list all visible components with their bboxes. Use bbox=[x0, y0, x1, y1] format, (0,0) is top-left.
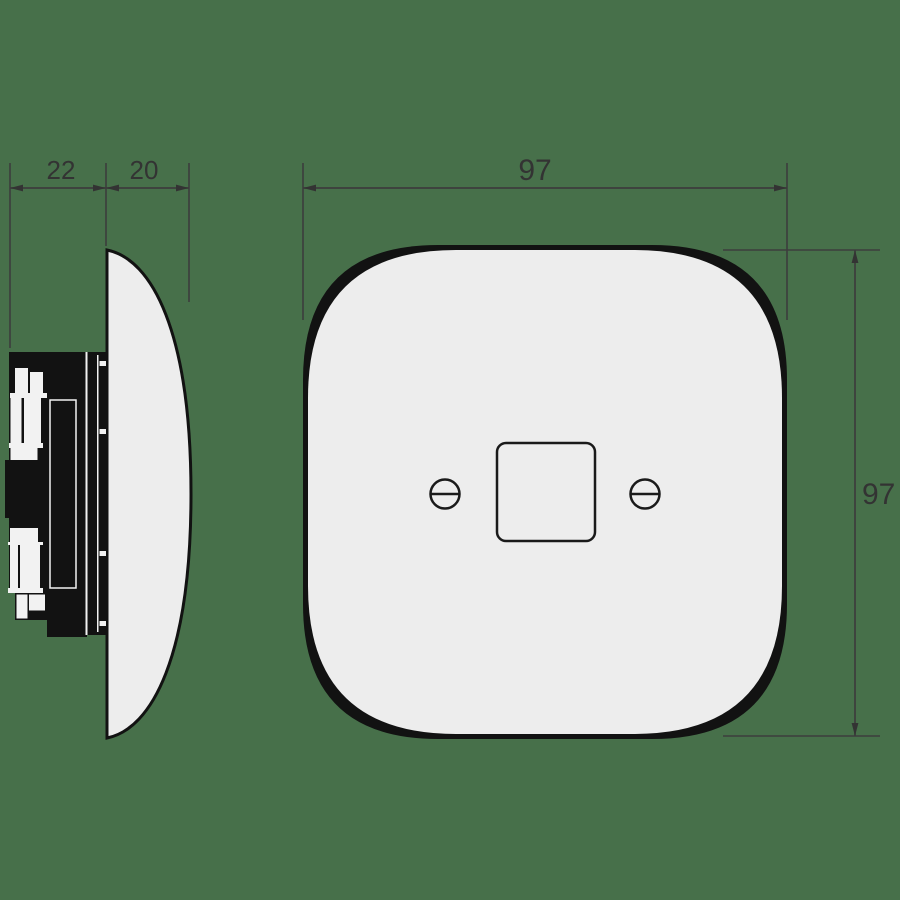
mechanism-slot bbox=[11, 448, 38, 460]
mechanism-body bbox=[47, 352, 87, 637]
mechanism-gap bbox=[97, 355, 99, 632]
arrowhead-left bbox=[10, 185, 23, 192]
arrowhead-right bbox=[93, 185, 106, 192]
mechanism-gap bbox=[86, 352, 88, 635]
mechanism-slot bbox=[9, 443, 43, 448]
mechanism-slot bbox=[30, 372, 43, 393]
arrowhead-right bbox=[176, 185, 189, 192]
mechanism-slot bbox=[24, 398, 41, 443]
claw-notch bbox=[100, 429, 107, 434]
mechanism-slot bbox=[10, 528, 38, 542]
front-view bbox=[303, 245, 787, 739]
mechanism-silhouette bbox=[5, 352, 106, 637]
dim-label-plate-height: 97 bbox=[862, 478, 895, 511]
screw-left bbox=[431, 480, 460, 509]
arrowhead-left bbox=[303, 185, 316, 192]
dim-label-mechanism-depth: 22 bbox=[47, 155, 76, 185]
mechanism-slot bbox=[8, 588, 43, 593]
mechanism-slot bbox=[10, 393, 47, 398]
mechanism-slot bbox=[20, 545, 40, 588]
dimension-plate-width: 97 bbox=[303, 154, 787, 191]
arrowhead-right bbox=[774, 185, 787, 192]
dimension-mechanism-depth: 22 bbox=[10, 155, 106, 191]
mechanism-slot bbox=[15, 368, 28, 393]
side-plate-profile bbox=[107, 250, 191, 738]
claw-notch bbox=[100, 621, 107, 626]
arrowhead-left bbox=[106, 185, 119, 192]
claw-notch bbox=[100, 361, 107, 366]
mechanism-slot bbox=[29, 595, 45, 611]
front-plate-face bbox=[308, 250, 782, 734]
dimension-plate-height: 97 bbox=[852, 250, 896, 736]
dim-label-plate-depth: 20 bbox=[130, 155, 159, 185]
side-view bbox=[5, 250, 191, 738]
screw-right bbox=[631, 480, 660, 509]
arrowhead-top bbox=[852, 250, 859, 263]
arrowhead-bottom bbox=[852, 723, 859, 736]
switch-plate-technical-drawing: 22 20 97 97 bbox=[0, 0, 900, 900]
mechanism-mounting-frame bbox=[87, 352, 106, 635]
mechanism-part bbox=[5, 460, 47, 518]
mechanism-slot bbox=[11, 398, 22, 443]
mechanism-slot bbox=[8, 542, 43, 545]
technical-drawing-page: 22 20 97 97 bbox=[0, 0, 900, 900]
mechanism-slot bbox=[10, 545, 18, 588]
claw-notch bbox=[100, 551, 107, 556]
dimension-plate-depth: 20 bbox=[106, 155, 189, 191]
dim-label-plate-width: 97 bbox=[518, 154, 551, 187]
mechanism-slot bbox=[17, 595, 28, 619]
